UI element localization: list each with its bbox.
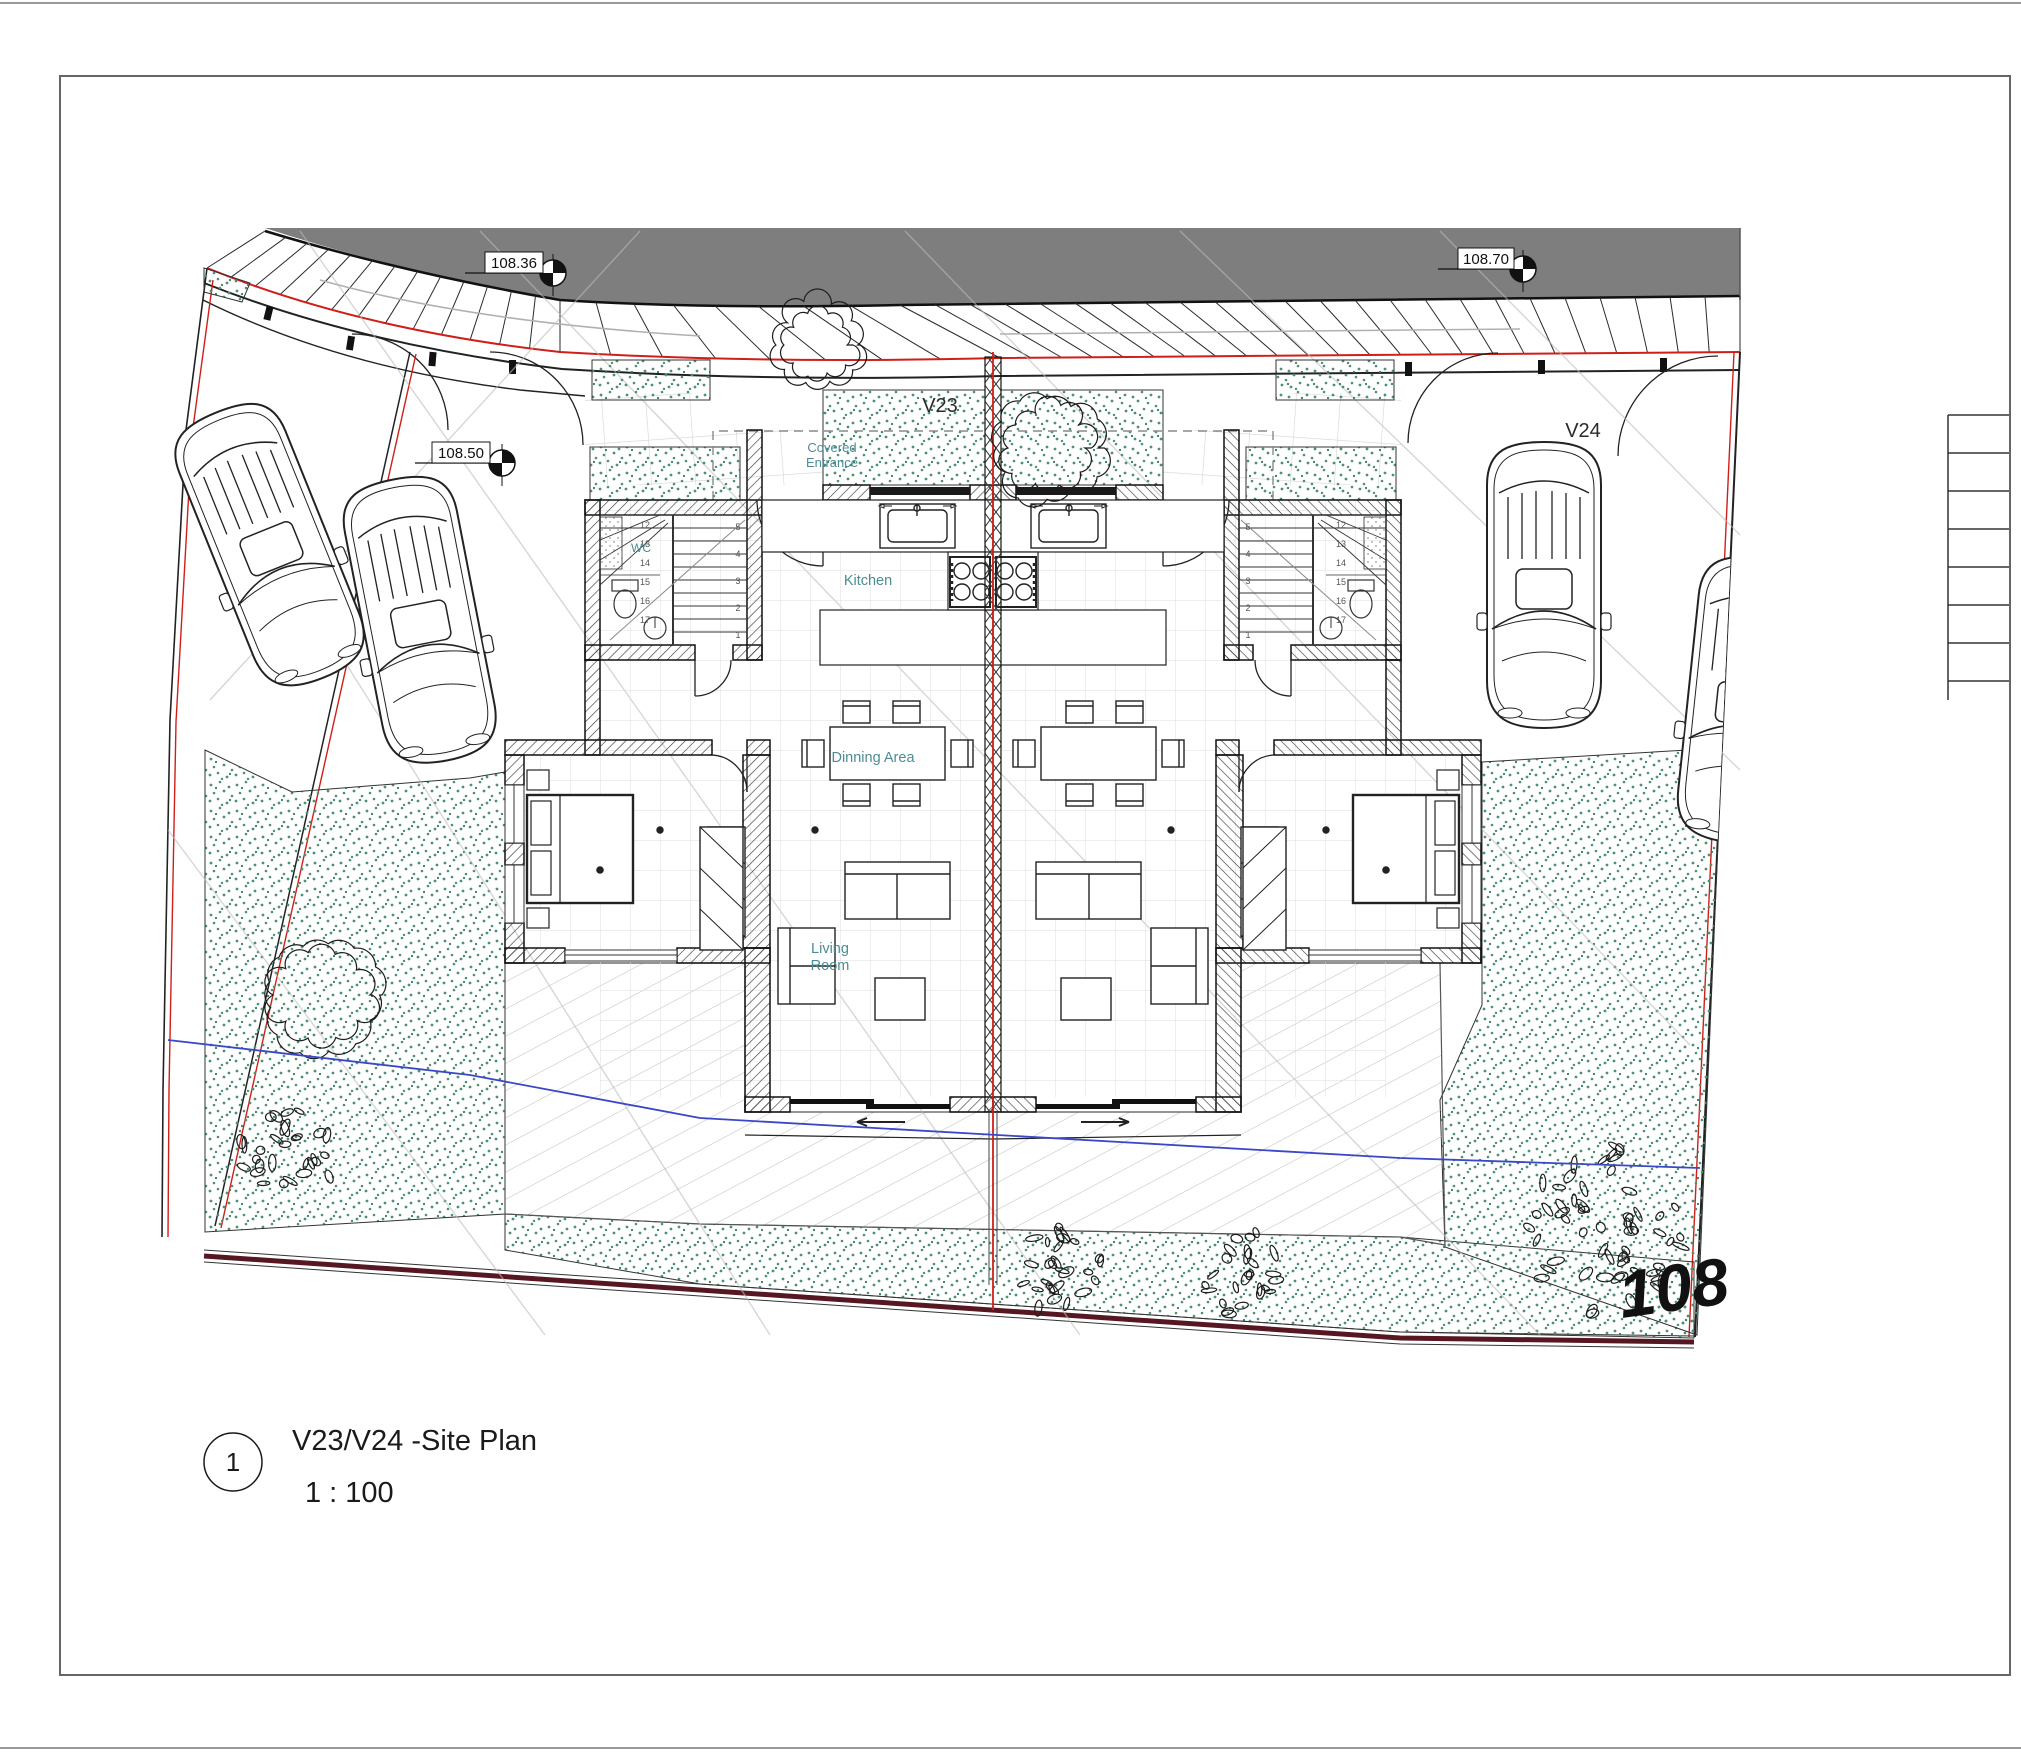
living-room-label-line2: Room [811, 958, 850, 974]
svg-text:12: 12 [1336, 520, 1346, 530]
svg-text:12: 12 [640, 520, 650, 530]
contour-big-label: 108 [1614, 1243, 1734, 1332]
dinning-area-label: Dinning Area [831, 750, 915, 766]
car-4 [1663, 551, 1826, 849]
spot-elevation-value: 108.50 [438, 445, 484, 462]
spot-elevation-value: 108.70 [1463, 251, 1509, 268]
site-plan-sheet: 5432112131415161754321121314151617 108.3… [0, 0, 2021, 1755]
svg-text:4: 4 [1245, 549, 1250, 559]
svg-text:1: 1 [735, 630, 740, 640]
svg-text:5: 5 [1245, 522, 1250, 532]
svg-text:1: 1 [1245, 630, 1250, 640]
living-room-label-line1: Living [811, 941, 849, 957]
spot-elevation-value: 108.36 [491, 255, 537, 272]
wc-label: WC [631, 541, 651, 555]
svg-text:2: 2 [735, 603, 740, 613]
covered-entrance-label-line2: Entrance [806, 455, 858, 470]
svg-text:13: 13 [1336, 539, 1346, 549]
svg-text:15: 15 [1336, 577, 1346, 587]
view-title: V23/V24 -Site Plan [292, 1425, 537, 1457]
site-plan-drawing: 5432112131415161754321121314151617 108.3… [0, 0, 2021, 1755]
svg-text:4: 4 [735, 549, 740, 559]
neighbour-steps [1948, 415, 2010, 700]
svg-text:3: 3 [1245, 576, 1250, 586]
covered-entrance-label-line1: Covered [807, 440, 856, 455]
svg-text:5: 5 [735, 522, 740, 532]
view-number: 1 [226, 1447, 240, 1477]
svg-text:14: 14 [640, 558, 650, 568]
svg-text:3: 3 [735, 576, 740, 586]
unit-label-v24: V24 [1565, 420, 1601, 442]
svg-text:16: 16 [640, 596, 650, 606]
svg-text:16: 16 [1336, 596, 1346, 606]
svg-text:14: 14 [1336, 558, 1346, 568]
unit-label-v23: V23 [922, 395, 958, 417]
view-title-block: 1 V23/V24 -Site Plan 1 : 100 [204, 1425, 537, 1509]
svg-text:17: 17 [1336, 615, 1346, 625]
svg-text:2: 2 [1245, 603, 1250, 613]
view-scale: 1 : 100 [305, 1477, 394, 1509]
svg-text:17: 17 [640, 615, 650, 625]
kitchen-label: Kitchen [844, 573, 892, 589]
svg-text:15: 15 [640, 577, 650, 587]
car-3 [1477, 442, 1611, 728]
